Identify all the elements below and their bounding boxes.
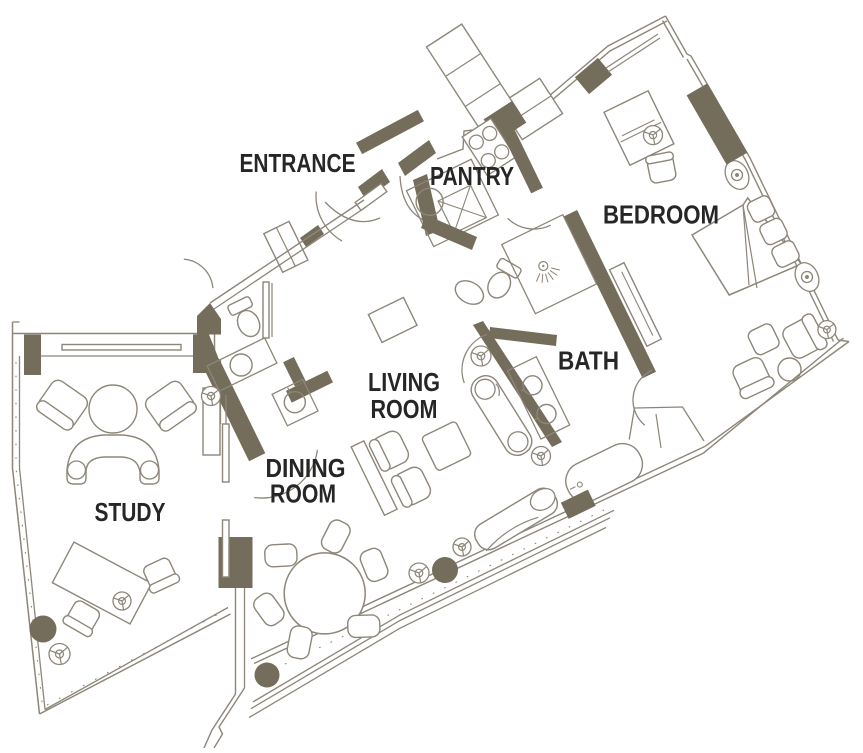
svg-text:BATH: BATH (558, 346, 619, 376)
svg-text:STUDY: STUDY (95, 497, 166, 527)
svg-text:LIVING: LIVING (368, 367, 440, 397)
svg-text:ROOM: ROOM (371, 394, 438, 424)
svg-text:BEDROOM: BEDROOM (603, 200, 719, 230)
svg-text:ENTRANCE: ENTRANCE (240, 148, 356, 178)
svg-text:PANTRY: PANTRY (430, 161, 514, 191)
svg-text:ROOM: ROOM (270, 479, 336, 509)
